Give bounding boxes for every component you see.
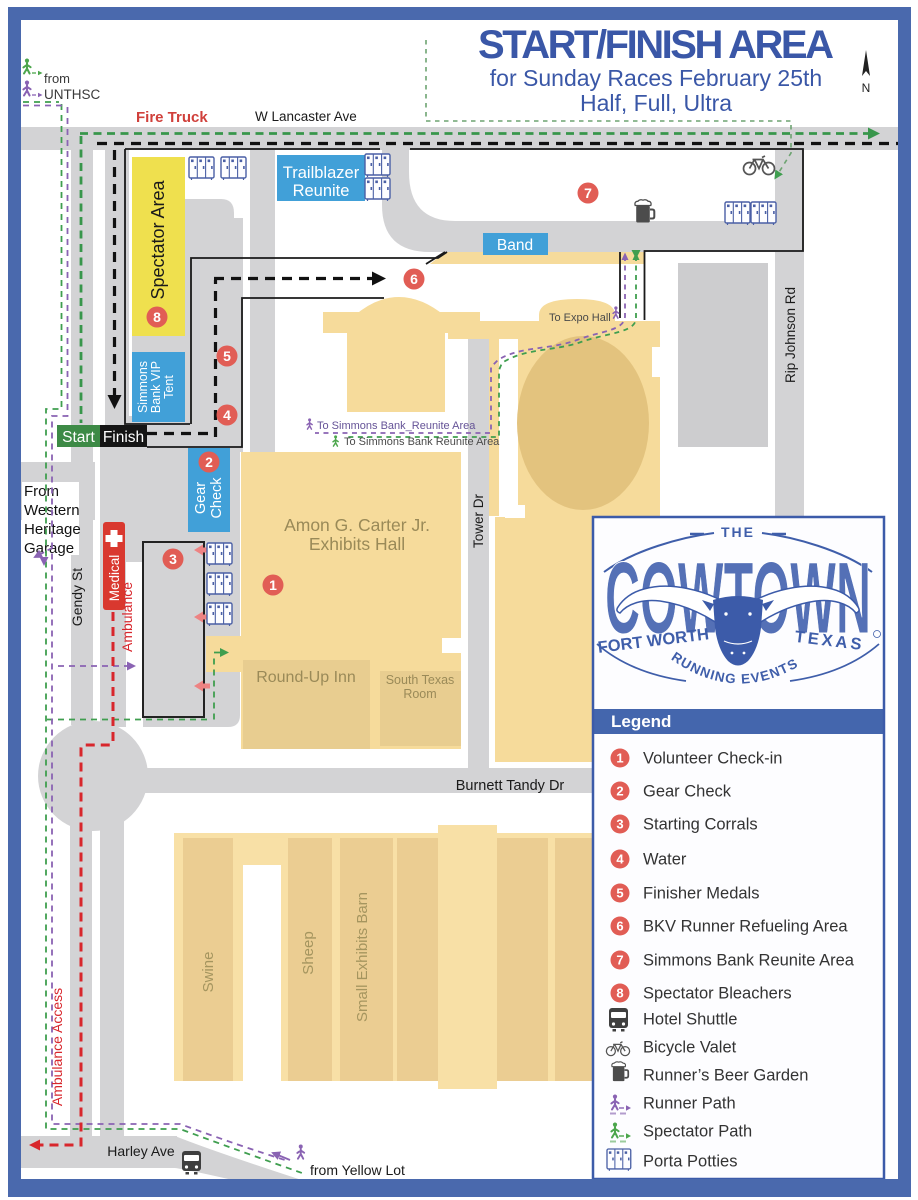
svg-text:South Texas: South Texas <box>386 673 455 687</box>
svg-text:Bicycle Valet: Bicycle Valet <box>643 1039 737 1057</box>
svg-text:6: 6 <box>410 271 418 287</box>
svg-text:Simmons: Simmons <box>136 361 150 413</box>
svg-text:Porta Potties: Porta Potties <box>643 1153 737 1171</box>
svg-text:Spectator Path: Spectator Path <box>643 1123 752 1141</box>
svg-text:To Simmons Bank_Reunite Area: To Simmons Bank_Reunite Area <box>317 420 476 432</box>
svg-text:7: 7 <box>584 185 592 201</box>
svg-text:2: 2 <box>205 454 213 470</box>
svg-text:5: 5 <box>223 348 231 364</box>
svg-text:START/FINISH AREA: START/FINISH AREA <box>478 23 834 67</box>
svg-text:8: 8 <box>153 309 161 325</box>
svg-text:4: 4 <box>616 852 624 867</box>
svg-text:Check: Check <box>209 477 225 519</box>
svg-text:Spectator Area: Spectator Area <box>148 179 168 299</box>
svg-text:Ambulance: Ambulance <box>119 582 135 652</box>
svg-text:To Simmons Bank Reunite Area: To Simmons Bank Reunite Area <box>344 436 500 448</box>
svg-text:Runner’s Beer Garden: Runner’s Beer Garden <box>643 1067 808 1085</box>
svg-text:To Expo Hall: To Expo Hall <box>549 312 611 324</box>
svg-text:Exhibits Hall: Exhibits Hall <box>309 534 405 554</box>
svg-text:Start: Start <box>62 429 95 446</box>
svg-text:1: 1 <box>269 577 277 593</box>
svg-text:7: 7 <box>616 953 623 968</box>
svg-text:Tower Dr: Tower Dr <box>471 493 486 548</box>
svg-text:Small Exhibits Barn: Small Exhibits Barn <box>354 892 371 1022</box>
svg-text:From: From <box>24 483 59 500</box>
svg-text:Spectator Bleachers: Spectator Bleachers <box>643 985 792 1003</box>
svg-text:Round-Up Inn: Round-Up Inn <box>256 669 356 686</box>
svg-text:Gendy St: Gendy St <box>69 568 85 626</box>
svg-text:THE: THE <box>721 524 755 540</box>
svg-text:W Lancaster Ave: W Lancaster Ave <box>255 109 357 124</box>
svg-text:for Sunday Races February 25th: for Sunday Races February 25th <box>490 65 822 91</box>
svg-text:Starting Corrals: Starting Corrals <box>643 816 758 834</box>
svg-text:BKV Runner Refueling Area: BKV Runner Refueling Area <box>643 918 848 936</box>
svg-text:1: 1 <box>616 751 623 766</box>
svg-text:5: 5 <box>616 886 623 901</box>
svg-text:Finish: Finish <box>103 429 144 446</box>
svg-text:Volunteer Check-in: Volunteer Check-in <box>643 750 782 768</box>
svg-text:Finisher Medals: Finisher Medals <box>643 885 759 903</box>
svg-text:Harley Ave: Harley Ave <box>107 1143 175 1159</box>
svg-text:Ambulance Access: Ambulance Access <box>49 988 65 1106</box>
svg-text:Gear: Gear <box>193 482 209 514</box>
svg-text:Rip Johnson Rd: Rip Johnson Rd <box>783 287 798 383</box>
svg-text:Amon G. Carter Jr.: Amon G. Carter Jr. <box>284 515 430 535</box>
svg-text:Reunite: Reunite <box>293 182 350 200</box>
svg-text:3: 3 <box>169 551 177 567</box>
svg-text:4: 4 <box>223 407 231 423</box>
svg-text:Fire Truck: Fire Truck <box>136 109 208 126</box>
svg-text:Sheep: Sheep <box>300 931 317 974</box>
svg-text:Room: Room <box>403 687 436 701</box>
svg-text:Simmons Bank Reunite Area: Simmons Bank Reunite Area <box>643 952 855 970</box>
svg-text:Tent: Tent <box>162 375 176 399</box>
svg-text:Gear Check: Gear Check <box>643 783 732 801</box>
svg-text:8: 8 <box>616 986 623 1001</box>
svg-text:Water: Water <box>643 851 687 869</box>
svg-text:Half, Full, Ultra: Half, Full, Ultra <box>580 90 732 116</box>
svg-text:Band: Band <box>497 237 533 254</box>
svg-text:Bank VIP: Bank VIP <box>149 361 163 413</box>
svg-text:from Yellow Lot: from Yellow Lot <box>310 1162 405 1178</box>
svg-text:Hotel Shuttle: Hotel Shuttle <box>643 1011 737 1029</box>
svg-text:Garage: Garage <box>24 540 74 557</box>
svg-text:6: 6 <box>616 919 623 934</box>
svg-text:from: from <box>44 71 70 86</box>
svg-text:Burnett Tandy Dr: Burnett Tandy Dr <box>456 778 565 794</box>
svg-text:Legend: Legend <box>611 712 671 731</box>
svg-text:UNTHSC: UNTHSC <box>44 87 100 102</box>
svg-text:2: 2 <box>616 784 623 799</box>
svg-text:Runner Path: Runner Path <box>643 1095 736 1113</box>
svg-text:N: N <box>862 81 871 95</box>
svg-text:3: 3 <box>616 817 623 832</box>
svg-text:Swine: Swine <box>200 952 217 993</box>
svg-text:Trailblazer: Trailblazer <box>283 164 360 182</box>
